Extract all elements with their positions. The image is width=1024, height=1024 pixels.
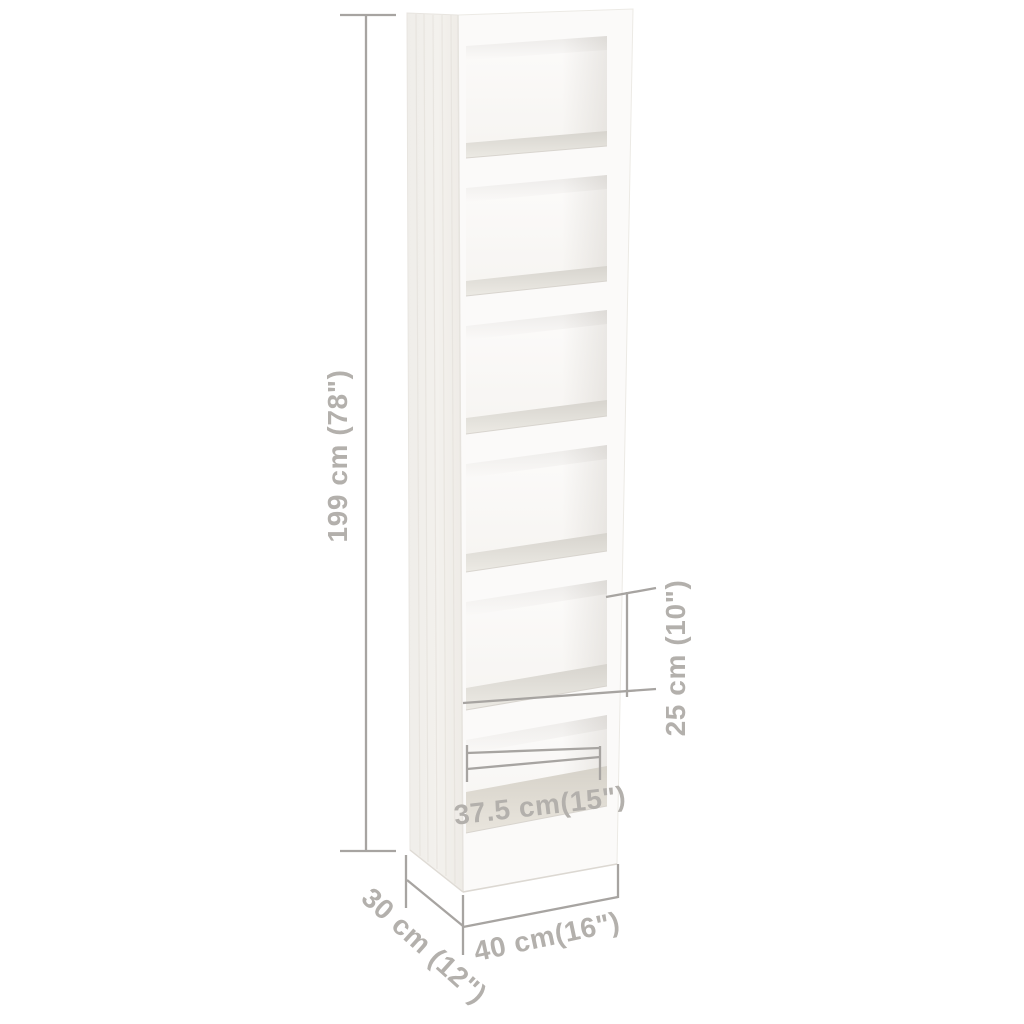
height-dimension-label: 199 cm (78"): [322, 369, 354, 542]
bookcase-illustration: [0, 0, 1024, 1024]
product-dimension-diagram: 199 cm (78") 25 cm (10") 37.5 cm(15") 40…: [0, 0, 1024, 1024]
shelf-spacing-dimension-label: 25 cm (10"): [660, 580, 692, 737]
